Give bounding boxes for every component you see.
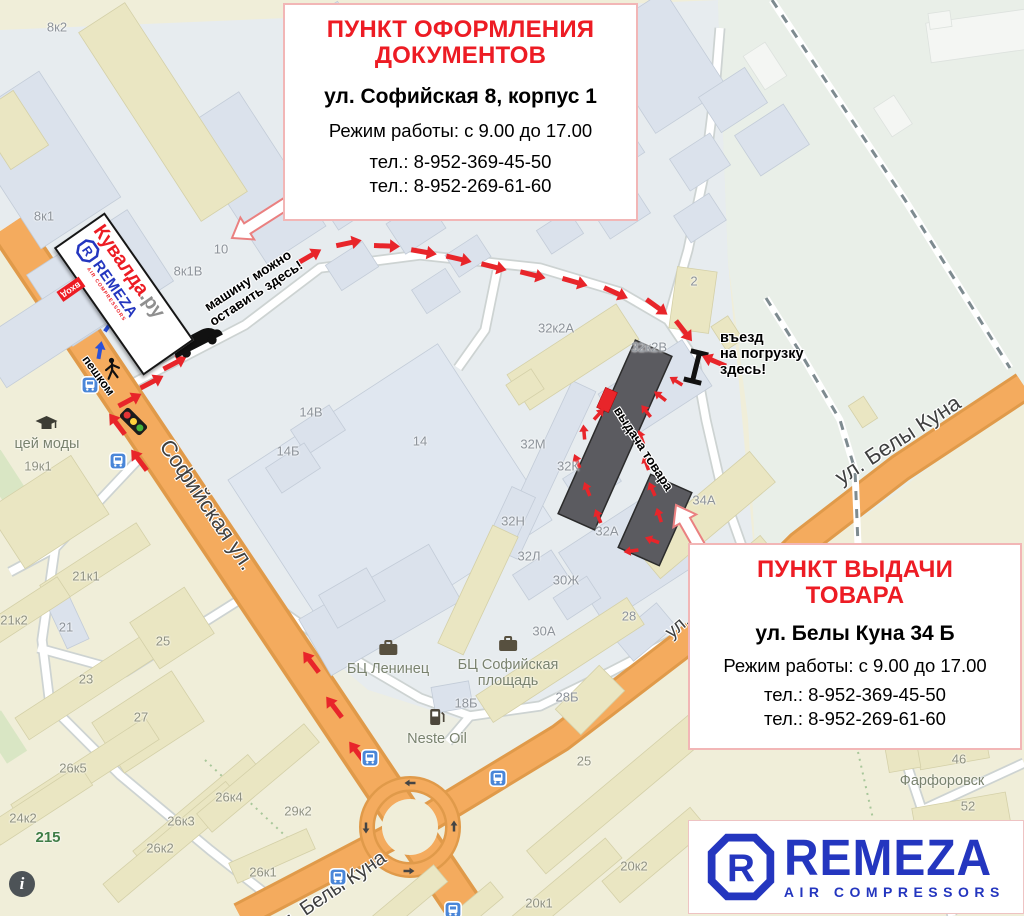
building-label: 14 <box>413 434 427 449</box>
briefcase-icon <box>458 636 559 657</box>
yard-route-arrow <box>623 545 639 557</box>
pickup-phone-2: тел.: 8-952-269-61-60 <box>690 708 1020 730</box>
poi-label: цей моды <box>15 416 80 453</box>
building-label: 32к2В <box>631 340 667 355</box>
pickup-title: ПУНКТ ВЫДАЧИТОВАРА <box>690 557 1020 610</box>
transport-stop-icon <box>109 452 127 470</box>
route-arrow <box>480 257 509 276</box>
transport-stop-icon <box>361 749 379 767</box>
building-label: 25 <box>156 634 170 649</box>
building-label: 30Ж <box>553 573 579 588</box>
yard-route-arrow <box>590 405 607 423</box>
building-label: 14Б <box>277 444 300 459</box>
gate-icon <box>683 348 709 385</box>
pickup-hours: Режим работы: с 9.00 до 17.00 <box>690 655 1020 677</box>
info-box-documents: ПУНКТ ОФОРМЛЕНИЯДОКУМЕНТОВ ул. Софийская… <box>283 3 638 221</box>
building-label: 8к2 <box>47 20 67 35</box>
roundabout-arrow <box>363 823 370 834</box>
documents-hours: Режим работы: с 9.00 до 17.00 <box>285 120 636 142</box>
building-label: 23 <box>79 672 93 687</box>
building-label: 32А <box>595 524 618 539</box>
route-arrow <box>335 234 363 253</box>
building-label: 32М <box>520 437 545 452</box>
yard-route-arrow <box>591 507 605 524</box>
building-label: 21к2 <box>0 613 27 628</box>
building-label: 25 <box>577 754 591 769</box>
yard-route-arrow <box>638 402 655 420</box>
yard-route-arrow <box>652 506 666 523</box>
poi-label: БЦ Софийскаяплощадь <box>458 636 559 690</box>
building-label: 26к3 <box>167 814 194 829</box>
building-label: 8к1В <box>174 264 203 279</box>
documents-phone-1: тел.: 8-952-369-45-50 <box>285 151 636 173</box>
building-label: 34А <box>692 493 715 508</box>
building-label: 20к1 <box>525 896 552 911</box>
building-label: 28 <box>622 609 636 624</box>
map-canvas: 8к28к18к1В1014В14Б1432к2А32к2В32М32К32Н3… <box>0 0 1024 916</box>
route-arrow <box>374 239 400 253</box>
pickup-phone-1: тел.: 8-952-369-45-50 <box>690 684 1020 706</box>
info-box-pickup: ПУНКТ ВЫДАЧИТОВАРА ул. Белы Куна 34 Б Ре… <box>688 543 1022 750</box>
pickup-address: ул. Белы Куна 34 Б <box>690 622 1020 646</box>
documents-address: ул. Софийская 8, корпус 1 <box>285 85 636 109</box>
briefcase-icon <box>347 640 429 661</box>
documents-phone-2: тел.: 8-952-269-61-60 <box>285 175 636 197</box>
route-arrow <box>601 282 630 305</box>
yard-route-arrow <box>651 388 669 405</box>
building-label: 32Н <box>501 514 525 529</box>
route-arrow <box>445 249 473 268</box>
route-arrow <box>671 317 698 346</box>
poi-label: БЦ Ленинец <box>347 640 429 678</box>
building-label: 28Б <box>556 690 579 705</box>
building-label: 29к2 <box>284 804 311 819</box>
building-label: 26к5 <box>59 761 86 776</box>
yard-route-arrow <box>580 480 594 497</box>
building-label: 24к2 <box>9 811 36 826</box>
street-direction-arrow <box>298 648 325 677</box>
roundabout-arrow <box>405 780 416 787</box>
route-arrow <box>519 265 548 284</box>
building-label: 32к2А <box>538 321 574 336</box>
building-label: 8к1 <box>34 209 54 224</box>
street-direction-arrow <box>321 693 348 722</box>
building-label: 2 <box>690 274 697 289</box>
roundabout-arrow <box>404 868 415 875</box>
remeza-name: REMEZA <box>784 834 992 882</box>
building-label: 21к1 <box>72 569 99 584</box>
poi-label: 215 <box>35 830 60 847</box>
yard-route-arrow <box>579 424 590 440</box>
route-arrow <box>561 272 590 292</box>
documents-title: ПУНКТ ОФОРМЛЕНИЯДОКУМЕНТОВ <box>285 17 636 70</box>
transport-stop-icon <box>444 901 462 916</box>
building-label: 21 <box>59 620 73 635</box>
roundabout-arrow <box>451 821 458 832</box>
info-icon: i <box>9 871 35 897</box>
yard-route-arrow <box>667 373 685 389</box>
building-label: 14В <box>299 405 322 420</box>
building-label: 19к1 <box>24 459 51 474</box>
building-label: 27 <box>134 710 148 725</box>
poi-label: Фарфоровск <box>900 774 984 790</box>
building-label: 26к2 <box>146 841 173 856</box>
building-label: 26к1 <box>249 865 276 880</box>
remeza-card: R REMEZA AIR COMPRESSORS <box>688 820 1024 914</box>
fuel-icon <box>407 708 467 731</box>
street-direction-arrow <box>126 446 153 475</box>
walk-route-arrow <box>93 340 107 360</box>
building-label: 52 <box>961 799 975 814</box>
loading-note: въездна погрузкуздесь! <box>720 330 804 379</box>
building-label: 10 <box>214 242 228 257</box>
museum-icon <box>15 416 80 436</box>
building-label: 20к2 <box>620 859 647 874</box>
transport-stop-icon <box>489 769 507 787</box>
svg-text:R: R <box>727 847 755 890</box>
remeza-logo-icon: R <box>707 833 775 901</box>
building-label: 26к4 <box>215 790 242 805</box>
building-label: 32Л <box>518 549 541 564</box>
transport-stop-icon <box>329 868 347 886</box>
route-arrow <box>410 243 438 261</box>
poi-label: Neste Oil <box>407 708 467 748</box>
building-label: 32К <box>557 459 579 474</box>
building-label: 46 <box>952 752 966 767</box>
yard-route-arrow <box>643 533 660 547</box>
route-arrow <box>642 294 671 320</box>
